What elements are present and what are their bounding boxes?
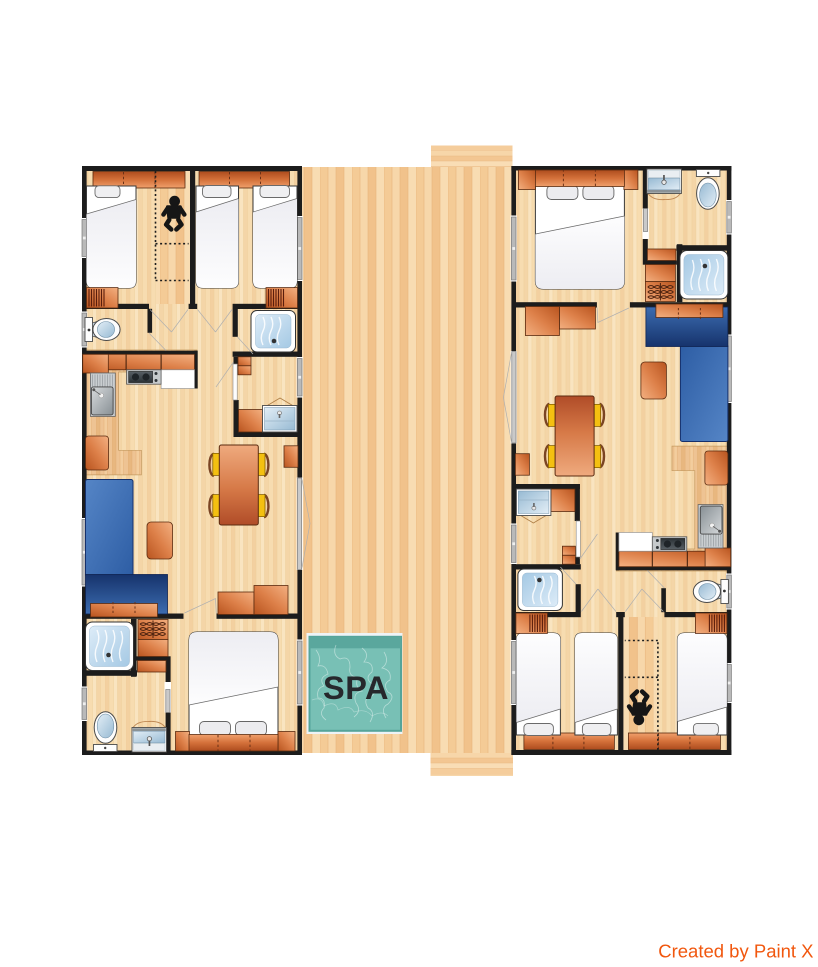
svg-text:SPA: SPA — [323, 670, 389, 706]
svg-text:Created by Paint X: Created by Paint X — [658, 941, 813, 962]
